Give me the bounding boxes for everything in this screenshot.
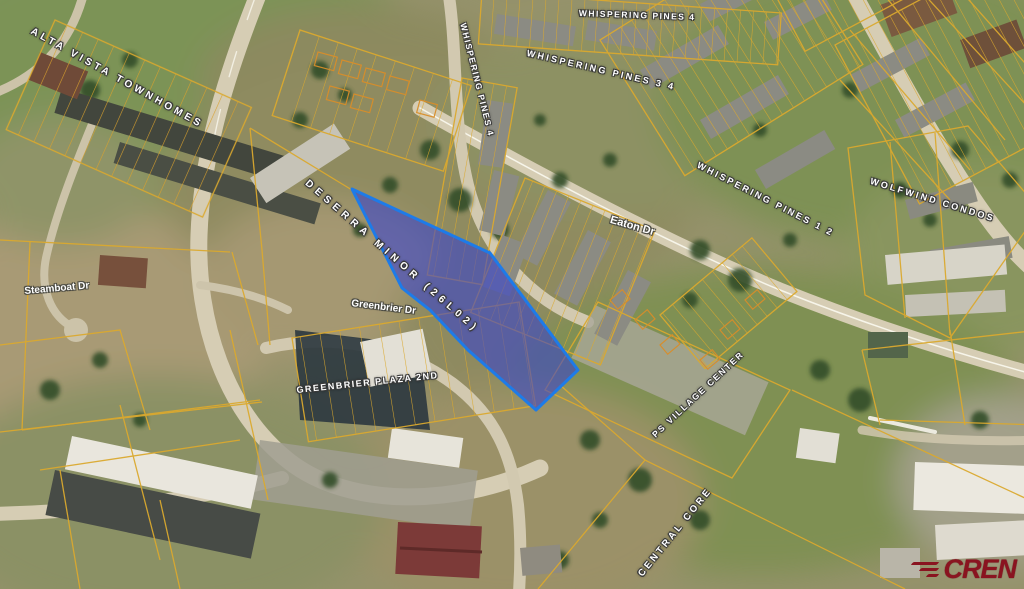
cren-logo-text: CREN: [943, 554, 1016, 585]
satellite-canvas: [0, 0, 1024, 589]
cren-logo: CREN: [912, 554, 1016, 585]
cren-logo-speed-lines-icon: [912, 561, 938, 579]
map-view[interactable]: ALTA VISTA TOWNHOMES WHISPERING PINES 4 …: [0, 0, 1024, 589]
